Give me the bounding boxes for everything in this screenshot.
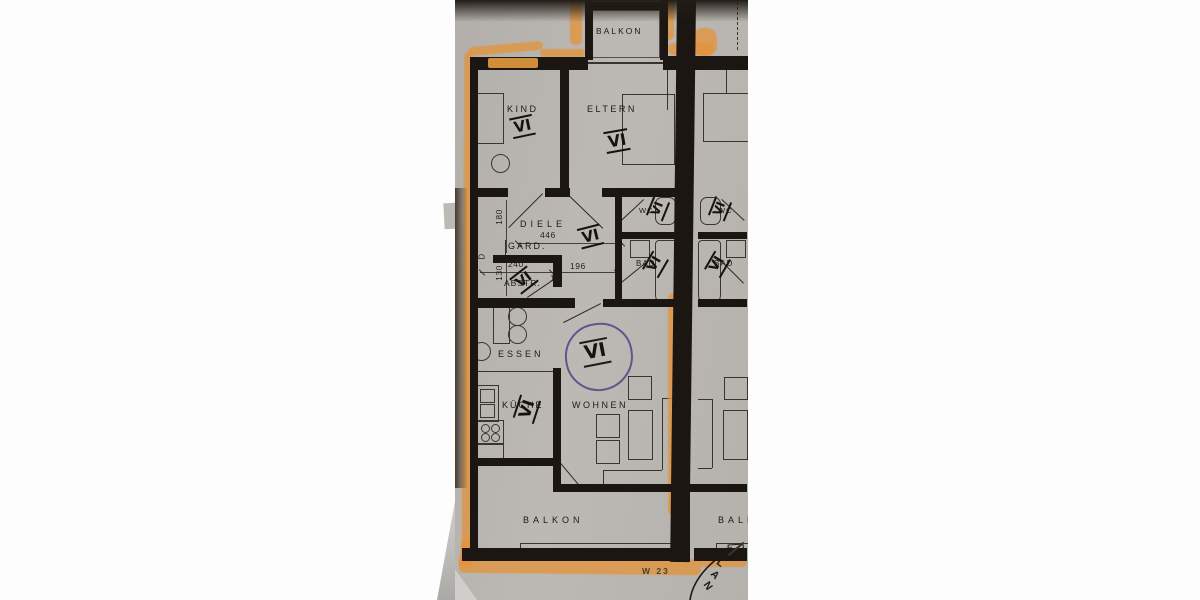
right-table-2	[723, 410, 748, 460]
wall-bottom-outer	[462, 548, 690, 561]
wall-wohnen-bottom-right	[690, 484, 747, 492]
dim-line-180	[506, 200, 507, 253]
wohnen-table-1	[628, 376, 652, 400]
dim-text-D: D	[478, 253, 487, 259]
kueche-top-line	[478, 371, 558, 372]
wall-wc-bad	[615, 232, 677, 239]
wall-wc-diele	[615, 197, 622, 307]
highlighter-top-arc	[468, 41, 543, 57]
vi-mark-circled: VI	[579, 337, 611, 368]
highlighter-top-wall	[540, 49, 585, 57]
highlighter-window-top	[488, 58, 538, 68]
wall-wohnen-bottom	[553, 484, 677, 492]
eltern-closet-line	[667, 70, 668, 110]
dim-text-10: 10	[550, 274, 560, 283]
sheet-code: W 23	[642, 566, 670, 576]
vi-mark-kueche: VI	[513, 394, 542, 424]
right-sofa-v	[712, 399, 713, 468]
dim-text-446: 446	[540, 230, 556, 240]
balcony-threshold	[585, 62, 668, 64]
kueche-counter-1b	[480, 404, 495, 418]
room-label-kind: KIND	[507, 104, 539, 114]
right-table-1	[724, 377, 748, 400]
wohnen-chair-1	[596, 414, 620, 438]
vi-mark-eltern: VI	[603, 128, 631, 154]
right-bad-basin	[726, 240, 746, 258]
room-label-balkon-bottom: BALKON	[523, 515, 584, 525]
stove-burner-1	[481, 424, 490, 433]
dim-text-180: 180	[494, 209, 504, 225]
stove-burner-3	[481, 433, 490, 442]
right-bed	[703, 93, 748, 142]
room-label-diele: DIELE	[520, 219, 566, 229]
room-label-essen: ESSEN	[498, 349, 544, 359]
wall-kueche-wohnen	[553, 368, 561, 492]
kind-wardrobe	[477, 93, 504, 144]
room-label-gard: GARD.	[508, 241, 547, 251]
sofa-line-bottom	[603, 470, 662, 471]
wohnen-table-2	[628, 410, 653, 460]
highlighter-balcony-left	[570, 0, 582, 45]
bad-basin	[630, 240, 650, 258]
kueche-counter-1a	[480, 389, 495, 403]
wall-wc-bad-right	[698, 232, 747, 239]
balcony-top-wall	[585, 2, 668, 10]
wall-kueche-bottom	[470, 458, 561, 466]
dim-text-240: 240	[508, 259, 524, 269]
vi-mark-kind: VI	[509, 114, 536, 140]
right-room-line-v	[726, 70, 727, 93]
screenshot: BALKON KIND ELTERN DIELE GARD. ABSTR. WC…	[0, 0, 1200, 600]
essen-chair-1	[508, 307, 527, 326]
wall-bedrooms-b	[545, 188, 570, 197]
right-sofa-bottom	[698, 468, 712, 469]
sofa-line-v	[662, 398, 663, 470]
dim-line-130	[506, 258, 507, 296]
dim-text-196: 196	[570, 261, 586, 271]
wall-gard	[493, 255, 562, 263]
wall-bedrooms-c	[602, 188, 678, 197]
right-sofa-top	[698, 399, 712, 400]
kueche-stove	[477, 420, 504, 445]
stove-burner-2	[491, 424, 500, 433]
right-axis-dashed	[737, 2, 738, 50]
floorplan-photo: BALKON KIND ELTERN DIELE GARD. ABSTR. WC…	[455, 0, 748, 600]
vi-mark-diele: VI	[577, 224, 605, 250]
room-label-wohnen: WOHNEN	[572, 400, 628, 410]
wall-party	[670, 0, 696, 562]
wall-bedrooms-a	[470, 188, 508, 197]
stove-burner-4	[491, 433, 500, 442]
room-label-eltern: ELTERN	[587, 104, 637, 114]
wall-kind-eltern	[560, 68, 569, 192]
room-label-balkon-top: BALKON	[596, 26, 643, 36]
highlighter-top-right-blob	[693, 28, 717, 56]
dim-line-196	[561, 272, 617, 273]
wall-abstr-bottom	[475, 298, 575, 308]
dim-text-130: 130	[494, 265, 504, 281]
room-label-balkon-right: BALKON	[718, 515, 748, 525]
wall-hall-bottom-right	[698, 299, 747, 307]
blue-pen-circle: VI	[561, 319, 637, 395]
kind-basin	[491, 154, 510, 173]
essen-chair-2	[508, 325, 527, 344]
wohnen-chair-2	[596, 440, 620, 464]
